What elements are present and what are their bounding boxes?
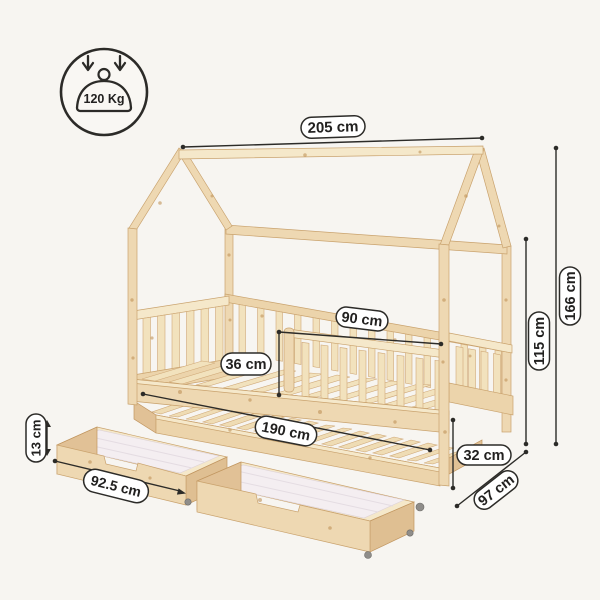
dimension-frame-height: 115 cm [524, 237, 550, 447]
dimension-drawer-height: 13 cm [26, 414, 51, 462]
guard-rail-end-post [284, 328, 294, 392]
dim-label-total-height: 166 cm [563, 271, 579, 320]
product-dimension-diagram: 205 cm 166 cm 115 cm 90 cm 3 [0, 0, 600, 600]
dimension-ridge-length: 205 cm [181, 115, 485, 149]
trundle-caster [416, 503, 424, 511]
dimension-total-height: 166 cm [554, 146, 581, 447]
drawer-caster [407, 530, 413, 536]
right-gable-back-rafter [476, 148, 511, 248]
dim-label-guard-rail-height: 36 cm [225, 357, 266, 373]
drawer-caster [365, 552, 372, 559]
back-purlin-beam [226, 225, 507, 254]
dim-label-ridge-length: 205 cm [307, 118, 358, 137]
front-left-post [128, 228, 137, 405]
drawer-right [197, 462, 414, 559]
ridge-beam [179, 146, 483, 159]
headboard-top-rail [133, 296, 229, 320]
dim-label-underbed-clearance: 32 cm [463, 448, 504, 464]
trundle-left-end [134, 401, 156, 433]
right-gable-front-rafter [440, 147, 484, 247]
left-gable-front-rafter [129, 148, 185, 232]
left-gable-back-rafter [179, 150, 232, 230]
front-right-post [439, 244, 449, 486]
drawer-caster [185, 499, 191, 505]
bed-diagram-canvas: 205 cm 166 cm 115 cm 90 cm 3 [0, 0, 600, 600]
max-load-badge: 120 Kg [61, 49, 147, 135]
dim-label-drawer-height: 13 cm [29, 420, 44, 457]
dim-label-frame-height: 115 cm [532, 317, 548, 365]
badge-max-load-label: 120 Kg [84, 92, 125, 106]
